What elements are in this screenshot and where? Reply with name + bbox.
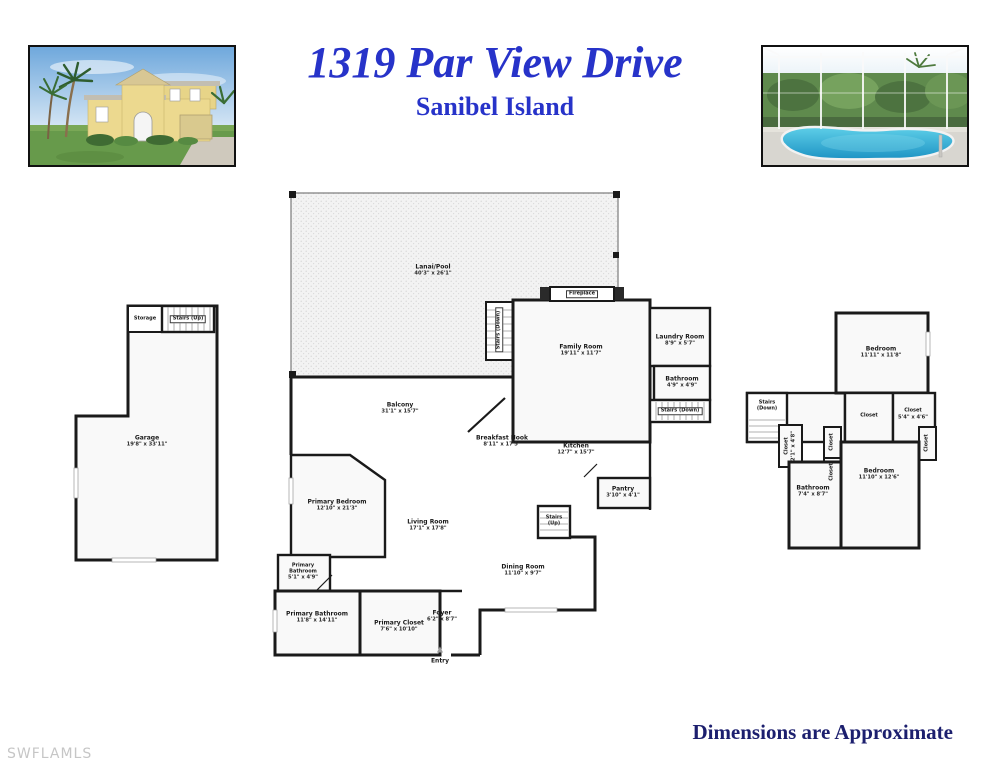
label-kitchen: Kitchen12'7" x 15'7" <box>557 443 594 456</box>
label-stairs-up-garage: Stairs (Up) <box>170 315 206 323</box>
flyer-page: 1319 Par View Drive Sanibel Island <box>0 0 995 768</box>
label-closet-left: Closet2'1" x 4'8" <box>784 431 796 461</box>
label-laundry: Laundry Room8'9" x 5'7" <box>656 334 705 347</box>
floor-plan <box>0 0 995 768</box>
label-bathroom-upper: Bathroom7'4" x 8'7" <box>796 485 829 498</box>
label-stairs-up-main: Stairs (Up) <box>541 516 567 527</box>
label-garage: Garage19'8" x 33'11" <box>127 435 168 448</box>
label-entry: Entry <box>431 658 449 665</box>
entry-arrow-icon: ▲ <box>437 645 443 654</box>
label-fireplace: Fireplace <box>566 290 598 298</box>
label-stairs-down-lanai: Stairs (Down) <box>495 308 503 353</box>
label-primary-bathroom: Primary Bathroom11'8" x 14'11" <box>286 611 348 624</box>
label-foyer: Foyer6'2" x 8'7" <box>427 610 457 623</box>
label-storage: Storage <box>134 316 156 322</box>
room-dining-walls <box>480 537 595 655</box>
label-primary-closet: Primary Closet7'6" x 10'10" <box>374 620 424 633</box>
label-primary-bedroom: Primary Bedroom12'10" x 21'3" <box>307 499 366 512</box>
label-dining-room: Dining Room11'10" x 9'7" <box>501 564 544 577</box>
mls-watermark: SWFLAMLS <box>7 746 92 762</box>
label-stairs-down-upper: Stairs (Down) <box>751 401 783 412</box>
label-balcony: Balcony31'1" x 15'7" <box>381 402 418 415</box>
label-lanai: Lanai/Pool40'3" x 26'1" <box>414 264 451 277</box>
label-closet-mid-a: Closet <box>829 433 835 451</box>
label-breakfast-nook: Breakfast Nook8'11" x 17'5" <box>476 435 528 448</box>
dimensions-disclaimer: Dimensions are Approximate <box>692 720 953 745</box>
label-bedroom-upper: Bedroom11'11" x 11'8" <box>861 346 902 359</box>
room-bedroom-lower <box>841 442 919 548</box>
label-primary-bathroom-small: Primary Bathroom5'1" x 4'9" <box>280 564 326 581</box>
label-living-room: Living Room17'1" x 17'8" <box>407 519 449 532</box>
label-family-room: Family Room19'11" x 11'7" <box>559 344 602 357</box>
room-garage <box>76 306 217 560</box>
label-stairs-down-hall: Stairs (Down) <box>658 407 703 415</box>
label-closet-corner: Closet5'4" x 4'6" <box>898 408 928 420</box>
label-closet-hall: Closet <box>860 413 878 419</box>
room-family-room <box>513 300 650 442</box>
label-closet-right: Closet <box>924 434 930 452</box>
label-pantry: Pantry3'10" x 4'1" <box>606 486 640 499</box>
label-bedroom-lower: Bedroom11'10" x 12'6" <box>859 468 900 481</box>
label-closet-mid-b: Closet <box>829 463 835 481</box>
label-bathroom-main: Bathroom4'9" x 4'9" <box>665 376 698 389</box>
